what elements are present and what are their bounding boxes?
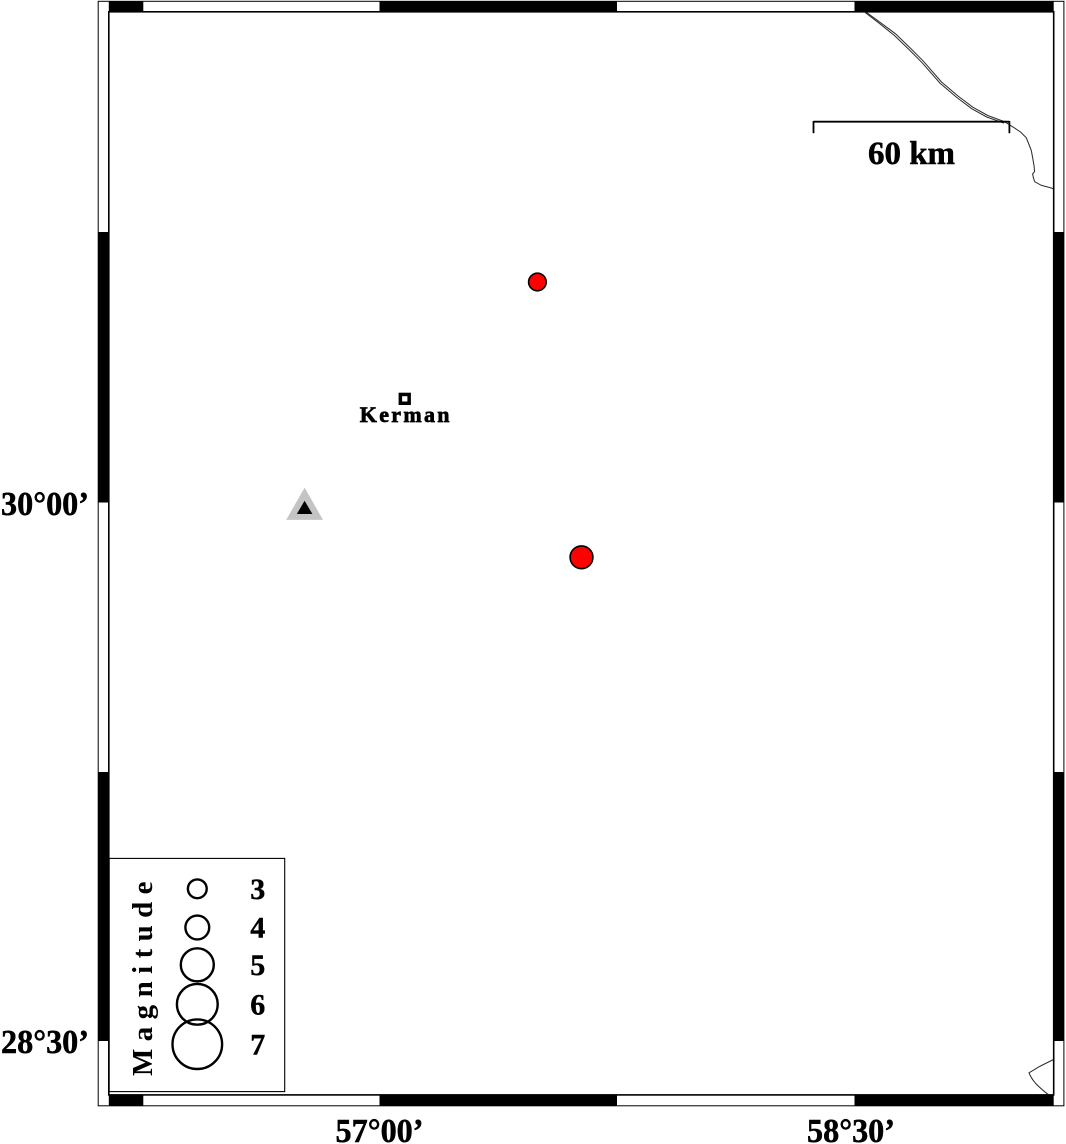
svg-text:28°30’: 28°30’ — [1, 1024, 89, 1061]
svg-text:Kerman: Kerman — [360, 402, 452, 427]
svg-text:58°30’: 58°30’ — [807, 1113, 895, 1144]
svg-text:7: 7 — [250, 1028, 265, 1061]
svg-text:6: 6 — [250, 988, 265, 1021]
svg-text:5: 5 — [250, 949, 265, 982]
svg-text:57°00’: 57°00’ — [336, 1113, 424, 1144]
svg-text:30°00’: 30°00’ — [1, 486, 89, 523]
svg-text:Magnitude: Magnitude — [127, 874, 159, 1076]
svg-text:60 km: 60 km — [868, 136, 955, 172]
svg-text:3: 3 — [250, 873, 265, 906]
svg-text:4: 4 — [250, 912, 265, 945]
